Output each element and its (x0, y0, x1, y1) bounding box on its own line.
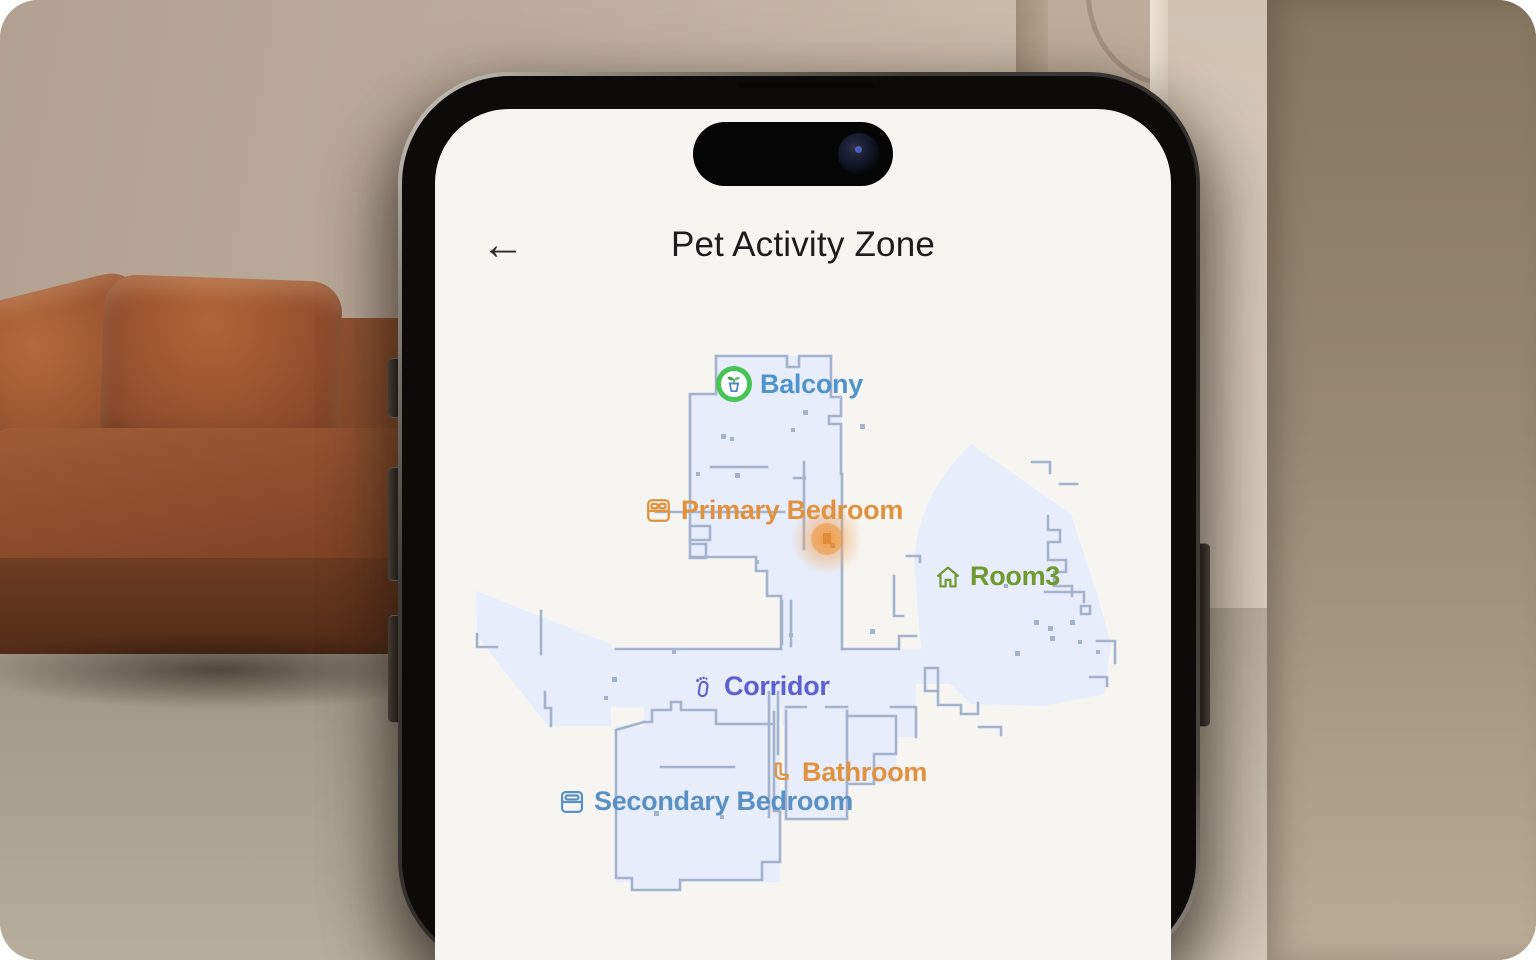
room-label-text: Room3 (970, 561, 1060, 592)
page-title: Pet Activity Zone (435, 225, 1171, 265)
room-label-secondary-bedroom[interactable]: Secondary Bedroom (558, 786, 853, 817)
plant-pot-icon (716, 366, 752, 402)
room-label-text: Bathroom (802, 757, 927, 788)
room-label-text: Secondary Bedroom (594, 786, 853, 817)
house-icon (934, 563, 962, 591)
phone-bezel: ← Pet Activity Zone (402, 76, 1196, 960)
bed-icon (558, 788, 586, 816)
dynamic-island (693, 122, 893, 186)
speaker-slit (739, 83, 874, 88)
bed-icon (644, 496, 673, 525)
room-label-bathroom[interactable]: Bathroom (766, 757, 927, 788)
room-label-text: Balcony (760, 369, 863, 400)
phone-screen: ← Pet Activity Zone (435, 109, 1171, 960)
toilet-icon (766, 759, 794, 787)
room-label-balcony[interactable]: Balcony (716, 366, 863, 402)
room-label-text: Primary Bedroom (681, 495, 903, 526)
sofa-seat (0, 428, 432, 570)
room-label-corridor[interactable]: Corridor (688, 671, 830, 702)
room-label-room3[interactable]: Room3 (934, 561, 1060, 592)
phone-frame: ← Pet Activity Zone (398, 72, 1200, 960)
front-camera-icon (838, 133, 880, 175)
screenshot-page: ← Pet Activity Zone (0, 0, 1536, 960)
footprint-icon (688, 673, 716, 701)
room-label-text: Corridor (724, 671, 830, 702)
foreground-wall (1267, 0, 1536, 960)
room-label-primary-bedroom[interactable]: Primary Bedroom (644, 495, 903, 526)
